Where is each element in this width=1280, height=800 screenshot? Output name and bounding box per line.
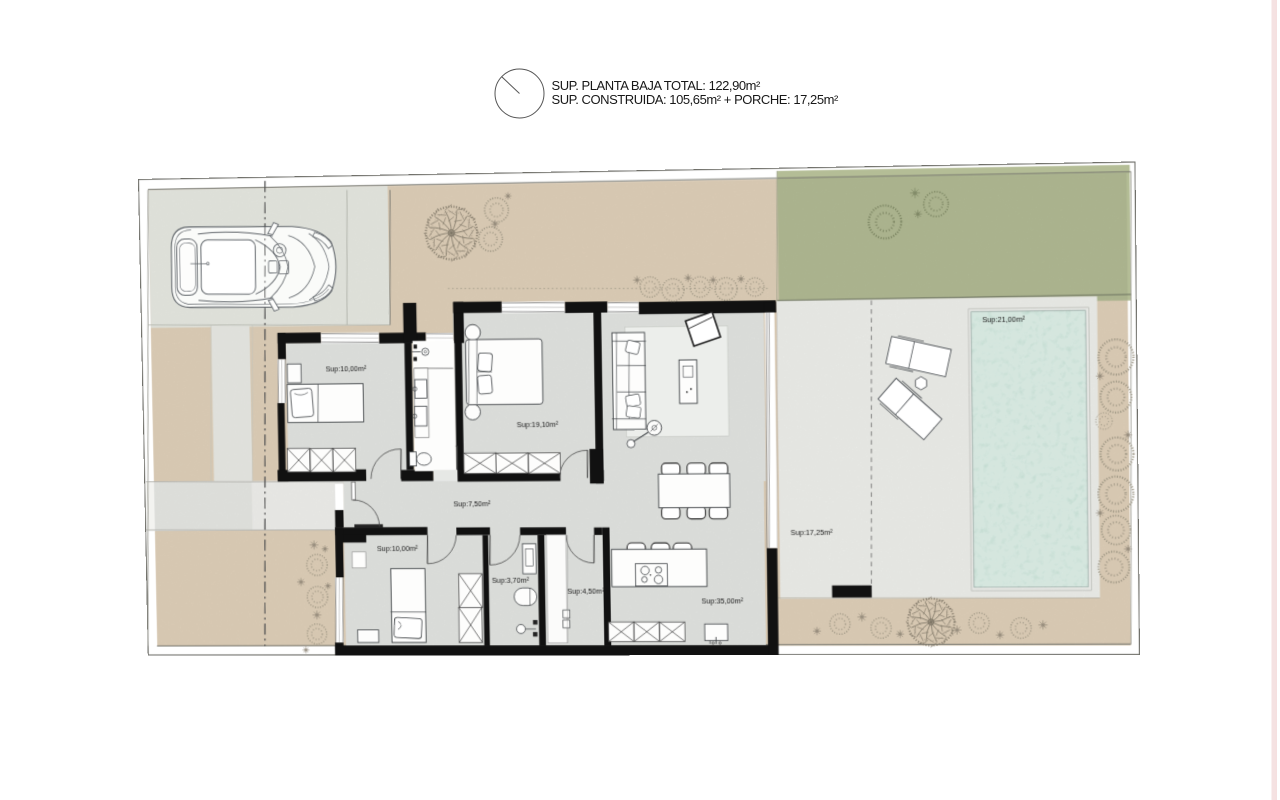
svg-text:Sup:10,00m²: Sup:10,00m²	[377, 545, 419, 553]
svg-text:Sup:19,10m²: Sup:19,10m²	[517, 421, 559, 430]
svg-text:Sup:35,00m²: Sup:35,00m²	[702, 598, 744, 606]
svg-text:Sup:21,00m²: Sup:21,00m²	[982, 316, 1025, 325]
svg-text:Sup:4,50m²: Sup:4,50m²	[567, 588, 605, 596]
svg-text:Sup:17,25m²: Sup:17,25m²	[791, 529, 834, 537]
svg-text:Sup:7,50m²: Sup:7,50m²	[453, 500, 491, 508]
svg-text:Sup:10,00m²: Sup:10,00m²	[326, 365, 368, 374]
svg-text:Sup:3,70m²: Sup:3,70m²	[492, 577, 530, 585]
